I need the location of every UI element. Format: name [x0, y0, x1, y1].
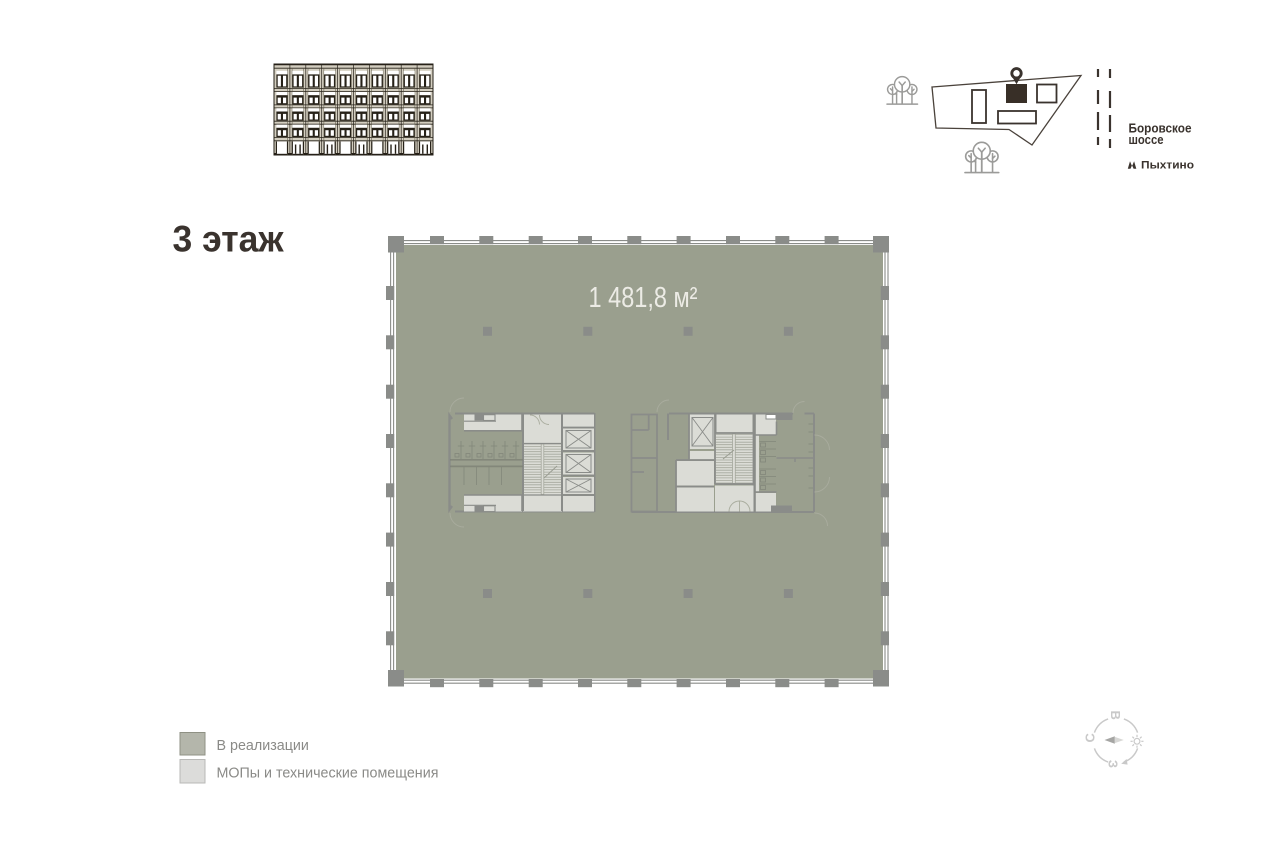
svg-text:Пыхтино: Пыхтино — [1141, 160, 1194, 172]
svg-text:В: В — [1108, 711, 1123, 720]
svg-text:С: С — [1083, 732, 1098, 742]
svg-text:шоссе: шоссе — [1129, 132, 1164, 147]
svg-text:МОПы и технические помещения: МОПы и технические помещения — [217, 766, 439, 782]
svg-text:3 этаж: 3 этаж — [173, 219, 285, 260]
svg-text:В реализации: В реализации — [217, 738, 309, 754]
svg-text:1 481,8 м²: 1 481,8 м² — [589, 282, 698, 314]
svg-text:З: З — [1106, 760, 1121, 768]
